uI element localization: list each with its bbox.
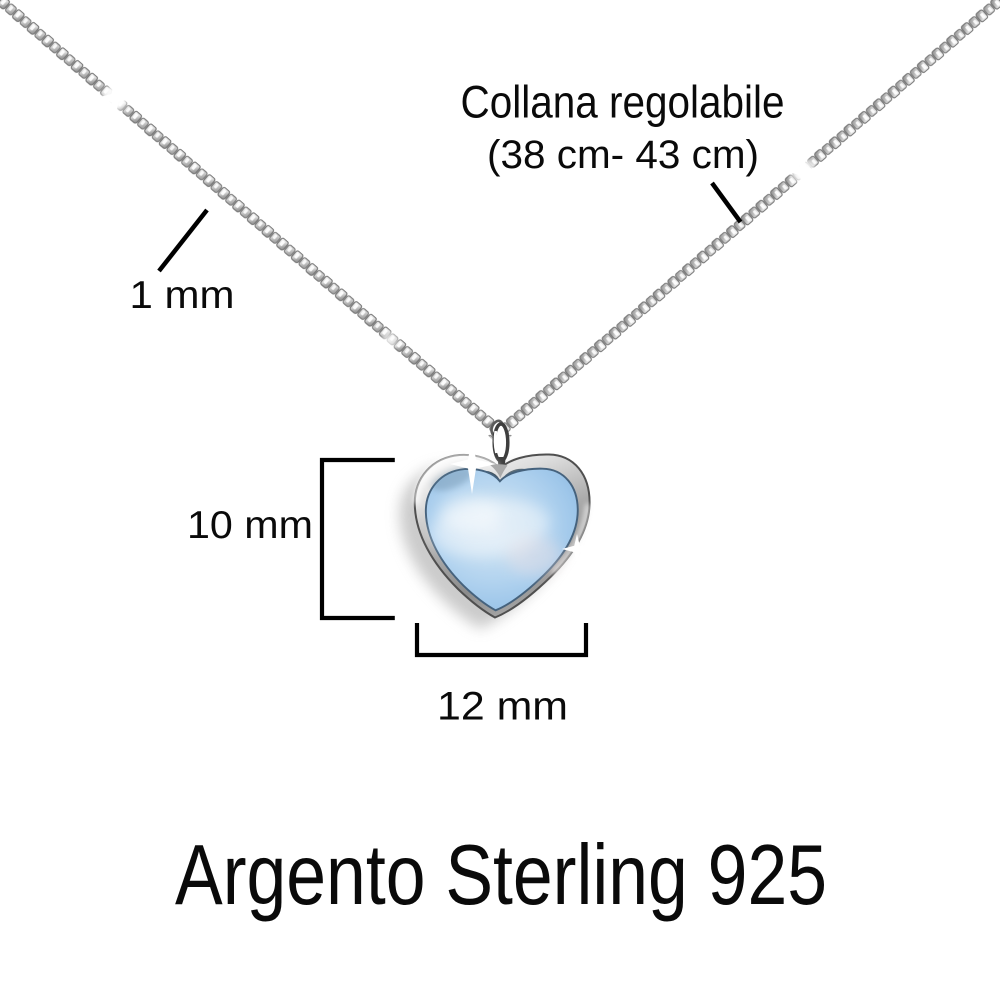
svg-text:Collana regolabile: Collana regolabile bbox=[461, 77, 785, 128]
svg-text:Argento Sterling 925: Argento Sterling 925 bbox=[175, 828, 827, 923]
svg-text:1 mm: 1 mm bbox=[130, 274, 235, 317]
svg-text:12 mm: 12 mm bbox=[437, 685, 568, 729]
svg-text:10 mm: 10 mm bbox=[187, 504, 313, 547]
svg-text:(38 cm- 43 cm): (38 cm- 43 cm) bbox=[487, 133, 759, 177]
